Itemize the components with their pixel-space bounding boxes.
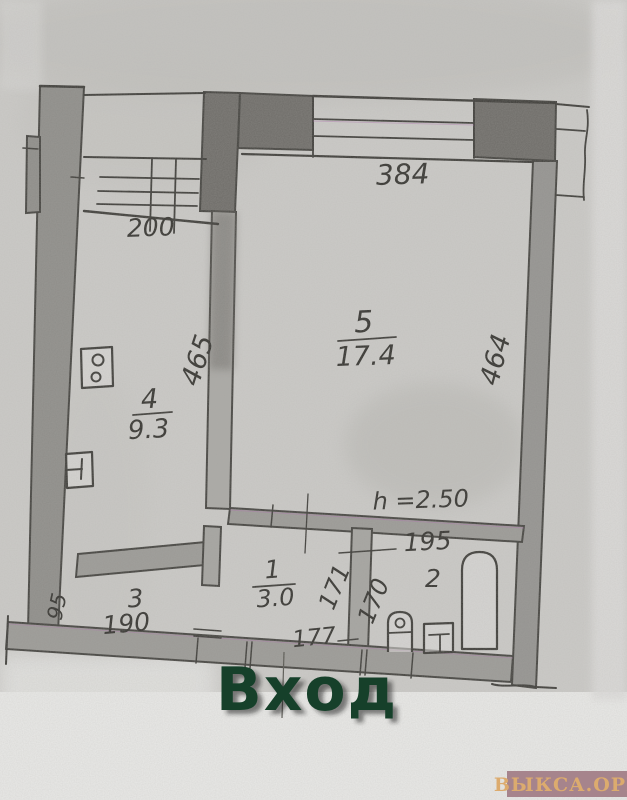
floor-plan-svg: 5 17.4 4 9.3 1 3.0 3 2 384 200 465 464 h…	[0, 0, 627, 800]
entrance-label: Вход	[216, 655, 398, 725]
site-watermark: ВЫКСА.ОРГ	[494, 771, 627, 797]
scanned-floor-plan-page: 5 17.4 4 9.3 1 3.0 3 2 384 200 465 464 h…	[0, 0, 627, 800]
watermark-label: ВЫКСА.ОРГ	[494, 774, 627, 796]
